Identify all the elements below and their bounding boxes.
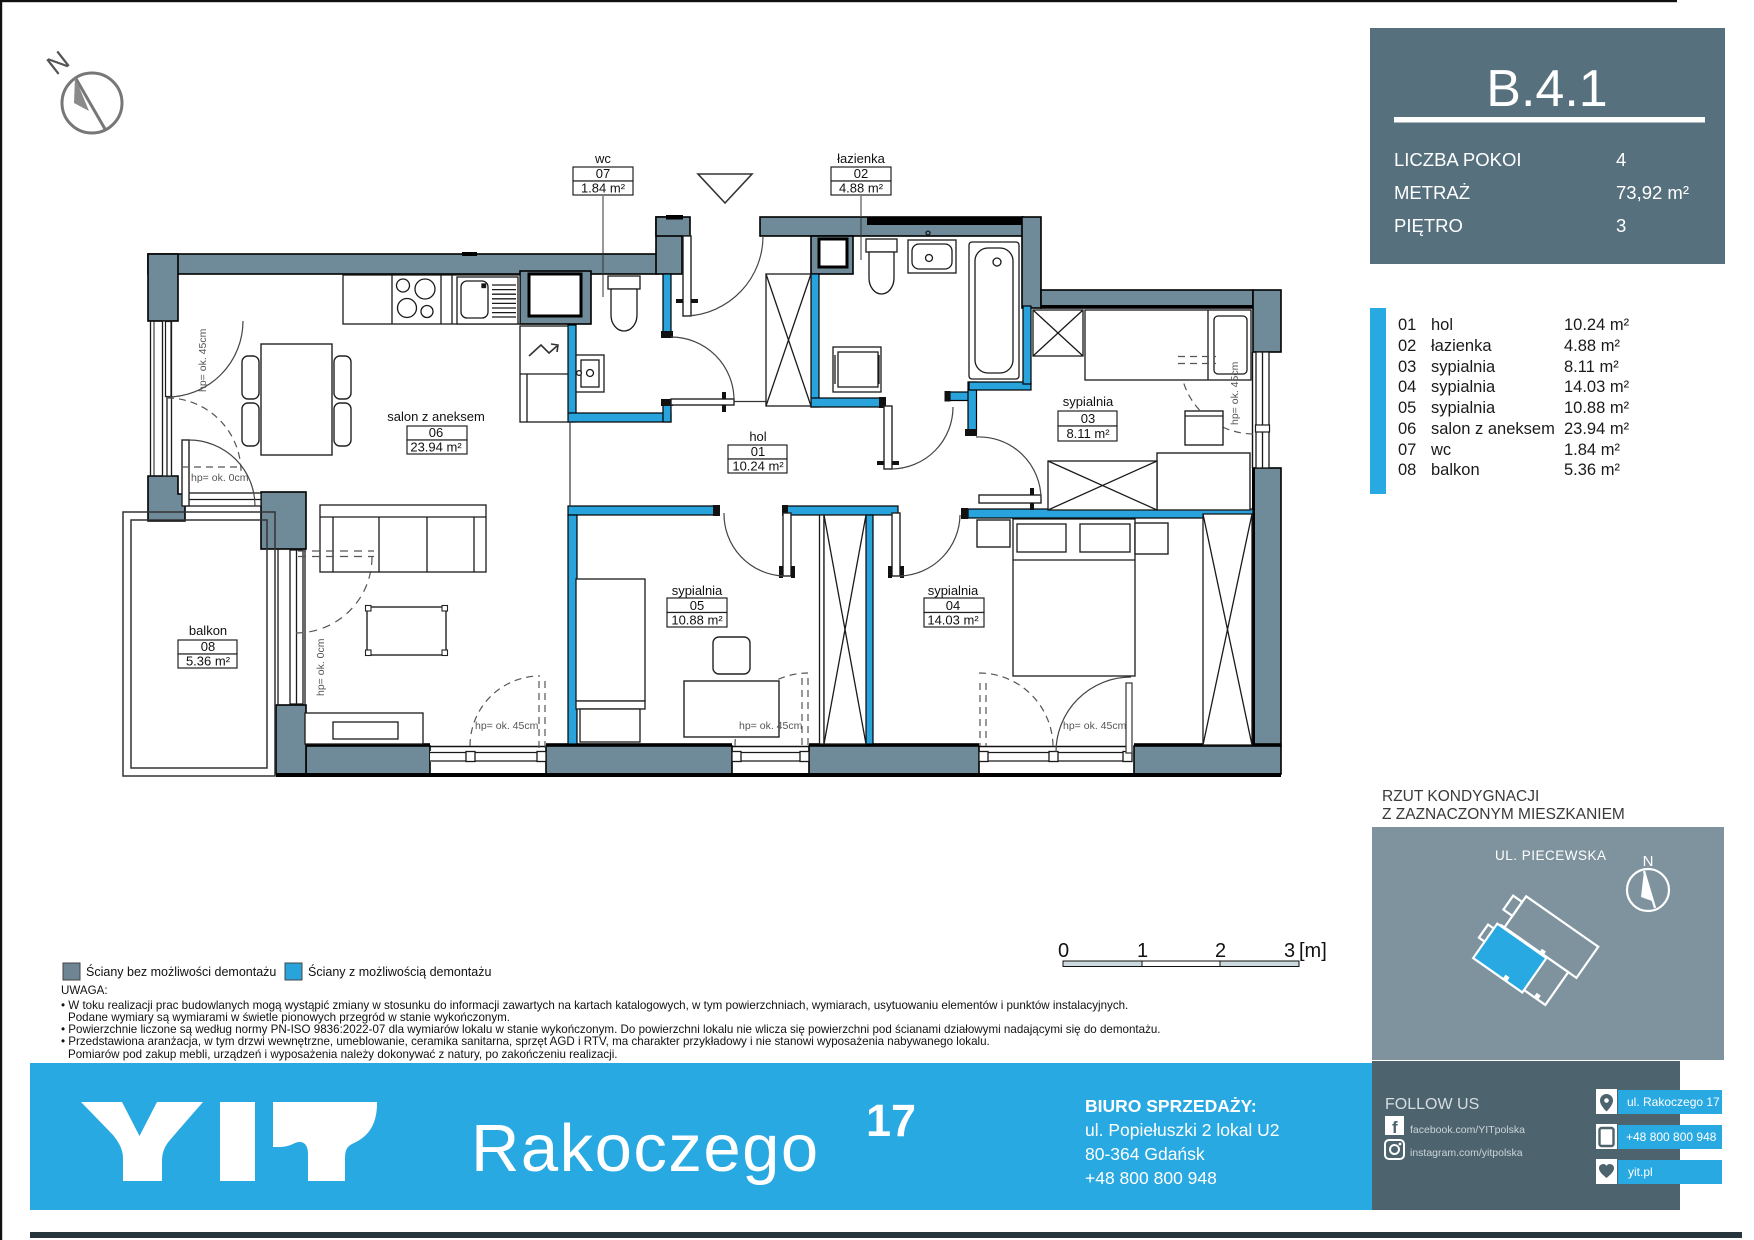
svg-text:08: 08 xyxy=(201,639,215,654)
svg-text:balkon: balkon xyxy=(189,623,227,638)
svg-text:4: 4 xyxy=(1616,149,1626,170)
svg-text:10.24 m²: 10.24 m² xyxy=(1564,316,1630,334)
svg-text:Z ZAZNACZONYM MIESZKANIEM: Z ZAZNACZONYM MIESZKANIEM xyxy=(1382,806,1625,823)
svg-text:RZUT KONDYGNACJI: RZUT KONDYGNACJI xyxy=(1382,788,1539,805)
svg-text:14.03 m²: 14.03 m² xyxy=(927,613,979,628)
svg-text:sypialnia: sypialnia xyxy=(1063,394,1114,409)
svg-text:3: 3 xyxy=(1284,940,1295,962)
svg-text:yit.pl: yit.pl xyxy=(1628,1165,1653,1179)
svg-text:01: 01 xyxy=(751,444,765,459)
svg-text:f: f xyxy=(1392,1118,1398,1137)
svg-text:4.88 m²: 4.88 m² xyxy=(839,181,884,196)
svg-text:07: 07 xyxy=(1398,441,1416,459)
svg-text:sypialnia: sypialnia xyxy=(1431,358,1496,376)
svg-text:5.36 m²: 5.36 m² xyxy=(186,654,231,669)
svg-text:06: 06 xyxy=(1398,420,1416,438)
svg-text:80-364 Gdańsk: 80-364 Gdańsk xyxy=(1085,1144,1205,1164)
svg-text:łazienka: łazienka xyxy=(1431,337,1492,355)
svg-text:03: 03 xyxy=(1081,411,1095,426)
svg-text:05: 05 xyxy=(690,598,704,613)
svg-text:73,92 m²: 73,92 m² xyxy=(1616,182,1689,203)
svg-text:hol: hol xyxy=(749,429,766,444)
svg-text:23.94 m²: 23.94 m² xyxy=(410,440,462,455)
svg-text:23.94 m²: 23.94 m² xyxy=(1564,420,1630,438)
svg-text:8.11 m²: 8.11 m² xyxy=(1564,358,1619,376)
svg-text:facebook.com/YITpolska: facebook.com/YITpolska xyxy=(1410,1124,1525,1136)
svg-text:0: 0 xyxy=(1058,940,1069,962)
svg-text:łazienka: łazienka xyxy=(837,151,885,166)
svg-text:UWAGA:: UWAGA: xyxy=(61,984,108,997)
svg-text:salon z aneksem: salon z aneksem xyxy=(1431,420,1555,438)
svg-text:05: 05 xyxy=(1398,399,1416,417)
svg-text:METRAŻ: METRAŻ xyxy=(1394,182,1470,203)
svg-text:N: N xyxy=(41,45,75,81)
svg-text:01: 01 xyxy=(1398,316,1416,334)
svg-text:balkon: balkon xyxy=(1431,461,1480,479)
svg-text:hp= ok. 45cm: hp= ok. 45cm xyxy=(739,720,803,732)
svg-text:[m]: [m] xyxy=(1299,940,1327,962)
svg-text:UL. PIECEWSKA: UL. PIECEWSKA xyxy=(1495,848,1607,863)
svg-text:PIĘTRO: PIĘTRO xyxy=(1394,215,1463,236)
svg-text:ul. Rakoczego 17: ul. Rakoczego 17 xyxy=(1627,1095,1720,1109)
svg-text:8.11 m²: 8.11 m² xyxy=(1066,426,1110,441)
svg-text:hp= ok. 45cm: hp= ok. 45cm xyxy=(197,328,209,392)
svg-text:07: 07 xyxy=(596,166,610,181)
svg-text:N: N xyxy=(1643,853,1654,870)
svg-text:03: 03 xyxy=(1398,358,1416,376)
svg-text:10.24 m²: 10.24 m² xyxy=(732,459,784,474)
svg-text:Ściany bez możliwości demontaż: Ściany bez możliwości demontażu xyxy=(86,964,276,979)
svg-text:• Przedstawiona aranżacja, w t: • Przedstawiona aranżacja, w tym drzwi w… xyxy=(61,1035,990,1048)
svg-text:02: 02 xyxy=(1398,337,1416,355)
svg-text:17: 17 xyxy=(866,1095,916,1146)
svg-text:B.4.1: B.4.1 xyxy=(1486,60,1607,118)
svg-text:5.36 m²: 5.36 m² xyxy=(1564,461,1620,479)
svg-text:10.88 m²: 10.88 m² xyxy=(1564,399,1630,417)
svg-text:hp= ok. 45cm: hp= ok. 45cm xyxy=(1063,720,1127,732)
svg-text:sypialnia: sypialnia xyxy=(1431,399,1496,417)
svg-text:ul. Popiełuszki 2 lokal U2: ul. Popiełuszki 2 lokal U2 xyxy=(1085,1120,1280,1140)
svg-text:1: 1 xyxy=(1137,940,1148,962)
svg-text:salon z aneksem: salon z aneksem xyxy=(387,409,485,424)
svg-text:sypialnia: sypialnia xyxy=(672,583,723,598)
svg-text:+48 800 800 948: +48 800 800 948 xyxy=(1626,1130,1717,1144)
svg-text:hp= ok. 45cm: hp= ok. 45cm xyxy=(475,720,539,732)
svg-text:sypialnia: sypialnia xyxy=(928,583,979,598)
svg-text:2: 2 xyxy=(1215,940,1226,962)
svg-text:04: 04 xyxy=(1398,378,1416,396)
svg-text:4.88 m²: 4.88 m² xyxy=(1564,337,1620,355)
svg-text:hp= ok. 45cm: hp= ok. 45cm xyxy=(1229,361,1241,425)
svg-text:06: 06 xyxy=(429,425,443,440)
svg-text:1.84 m²: 1.84 m² xyxy=(581,181,626,196)
svg-text:wc: wc xyxy=(1430,441,1451,459)
svg-text:08: 08 xyxy=(1398,461,1416,479)
svg-text:1.84 m²: 1.84 m² xyxy=(1564,441,1620,459)
svg-text:04: 04 xyxy=(946,598,960,613)
svg-text:Ściany z możliwością demontażu: Ściany z możliwością demontażu xyxy=(308,964,491,979)
svg-text:10.88 m²: 10.88 m² xyxy=(671,613,723,628)
svg-text:instagram.com/yitpolska: instagram.com/yitpolska xyxy=(1410,1147,1523,1159)
svg-text:14.03 m²: 14.03 m² xyxy=(1564,378,1630,396)
svg-text:+48 800 800 948: +48 800 800 948 xyxy=(1085,1168,1217,1188)
svg-text:Rakoczego: Rakoczego xyxy=(471,1111,820,1186)
svg-text:FOLLOW US: FOLLOW US xyxy=(1385,1096,1479,1113)
svg-text:Pomiarów pod zakup mebli, urzą: Pomiarów pod zakup mebli, urządzeń i wyp… xyxy=(68,1048,618,1061)
svg-text:LICZBA POKOI: LICZBA POKOI xyxy=(1394,149,1522,170)
svg-text:02: 02 xyxy=(854,166,868,181)
svg-text:3: 3 xyxy=(1616,215,1626,236)
svg-text:hp= ok. 0cm: hp= ok. 0cm xyxy=(191,472,249,484)
svg-text:BIURO SPRZEDAŻY:: BIURO SPRZEDAŻY: xyxy=(1085,1096,1257,1116)
svg-text:wc: wc xyxy=(594,151,611,166)
svg-text:sypialnia: sypialnia xyxy=(1431,378,1496,396)
svg-text:hp= ok. 0cm: hp= ok. 0cm xyxy=(315,638,327,696)
svg-text:hol: hol xyxy=(1431,316,1453,334)
